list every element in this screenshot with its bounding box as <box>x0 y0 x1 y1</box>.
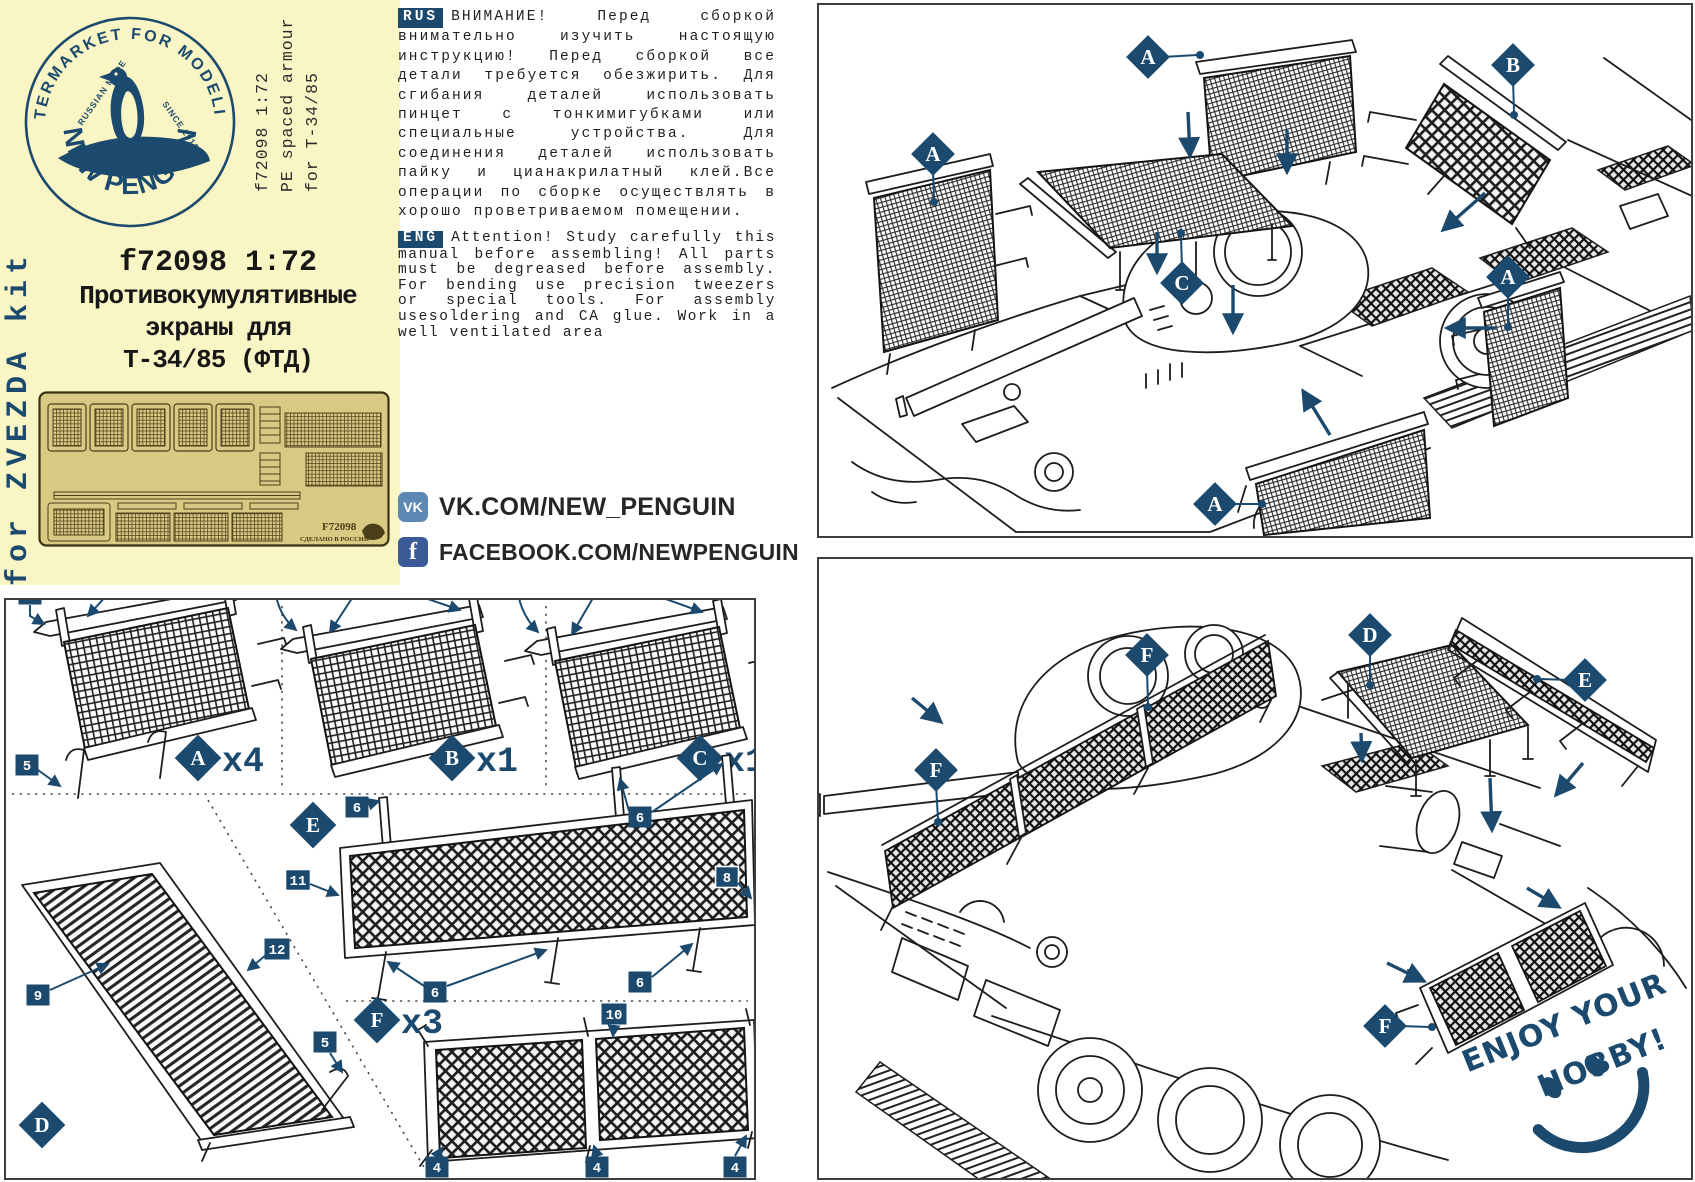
svg-text:A: A <box>1140 45 1156 69</box>
svg-text:B: B <box>1506 53 1520 77</box>
new-penguin-logo: AFTERMARKET FOR MODELING NEW PENGUIN RUS… <box>12 8 248 240</box>
part-e-diagram: 6 6 11 8 6 6 E <box>286 755 755 1003</box>
svg-text:7: 7 <box>26 600 34 604</box>
screen-b <box>1362 56 1566 248</box>
svg-text:4: 4 <box>433 1161 441 1177</box>
svg-text:4: 4 <box>593 1161 601 1177</box>
svg-text:D: D <box>34 1113 49 1137</box>
svg-text:5: 5 <box>23 759 31 775</box>
svg-text:11: 11 <box>290 874 307 890</box>
svg-text:10: 10 <box>606 1008 623 1024</box>
part-label-a-top: A <box>1126 35 1204 79</box>
facebook-link[interactable]: f FACEBOOK.COM/NEWPENGUIN <box>398 537 799 567</box>
svg-text:6: 6 <box>431 986 439 1002</box>
assembly-diagram-top: A B A C A A <box>817 3 1693 538</box>
svg-text:E: E <box>1578 668 1592 692</box>
assembly-diagram-bottom: F D E F F ENJOY YOUR HOBBY! <box>817 557 1693 1180</box>
svg-text:6: 6 <box>353 801 361 817</box>
eng-warning-paragraph: ENGAttention! Study carefully this manua… <box>398 231 776 341</box>
svg-text:A: A <box>1500 265 1516 289</box>
svg-text:A: A <box>1207 492 1223 516</box>
part-f-diagram: 10 4 4 4 F x3 <box>354 997 754 1178</box>
eng-badge: ENG <box>398 231 443 248</box>
vk-link[interactable]: VK VK.COM/NEW_PENGUIN <box>398 492 736 522</box>
svg-text:4: 4 <box>731 1161 739 1177</box>
facebook-icon: f <box>398 537 428 567</box>
svg-text:C: C <box>692 746 707 770</box>
svg-text:E: E <box>306 813 320 837</box>
svg-text:9: 9 <box>34 989 42 1005</box>
kit-compatibility-label: for ZVEZDA kit <box>2 236 36 586</box>
svg-text:C: C <box>1174 271 1189 295</box>
parts-detail-panel: 7 1 A x4 7 2 B x1 <box>4 598 756 1180</box>
svg-text:B: B <box>445 746 459 770</box>
svg-text:A: A <box>925 142 941 166</box>
part-label-b: B <box>1491 43 1535 119</box>
vk-icon: VK <box>398 492 428 522</box>
svg-text:x1: x1 <box>476 742 518 782</box>
brand-card: AFTERMARKET FOR MODELING NEW PENGUIN RUS… <box>0 0 400 585</box>
pe-fret-image: F72098 СДЕЛАНО В РОССИИ <box>38 391 390 547</box>
svg-text:x3: x3 <box>401 1004 443 1044</box>
svg-text:A: A <box>190 746 206 770</box>
svg-text:F: F <box>930 758 943 782</box>
part-c-diagram: 7 3 C x1 <box>506 600 755 782</box>
svg-text:8: 8 <box>723 871 731 887</box>
part-d-diagram: 5 9 12 5 D <box>16 731 355 1161</box>
svg-text:x4: x4 <box>222 742 264 782</box>
product-title: f72098 1:72 Противокумулятивные экраны д… <box>40 246 396 376</box>
svg-text:5: 5 <box>321 1036 329 1052</box>
screen-a2 <box>866 154 1032 374</box>
svg-text:F: F <box>371 1008 384 1032</box>
fret-code: F72098 <box>322 521 357 533</box>
svg-text:12: 12 <box>269 943 286 959</box>
product-side-label: f72098 1:72 PE spaced armour for T-34/85 <box>250 16 325 192</box>
svg-text:F: F <box>1379 1014 1392 1038</box>
svg-text:F: F <box>1141 643 1154 667</box>
rus-warning-paragraph: RUSВНИМАНИЕ! Перед сборкой внимательно и… <box>398 8 776 222</box>
part-b-diagram: 7 2 B x1 <box>264 600 535 782</box>
svg-text:D: D <box>1362 623 1377 647</box>
part-label-f-bottom: F <box>1363 1004 1436 1048</box>
rus-badge: RUS <box>398 8 443 28</box>
svg-text:6: 6 <box>636 976 644 992</box>
screen-a4 <box>1238 412 1430 535</box>
svg-text:6: 6 <box>636 811 644 827</box>
fret-made-in: СДЕЛАНО В РОССИИ <box>300 536 369 543</box>
part-a-diagram: 7 1 A x4 <box>19 600 288 782</box>
